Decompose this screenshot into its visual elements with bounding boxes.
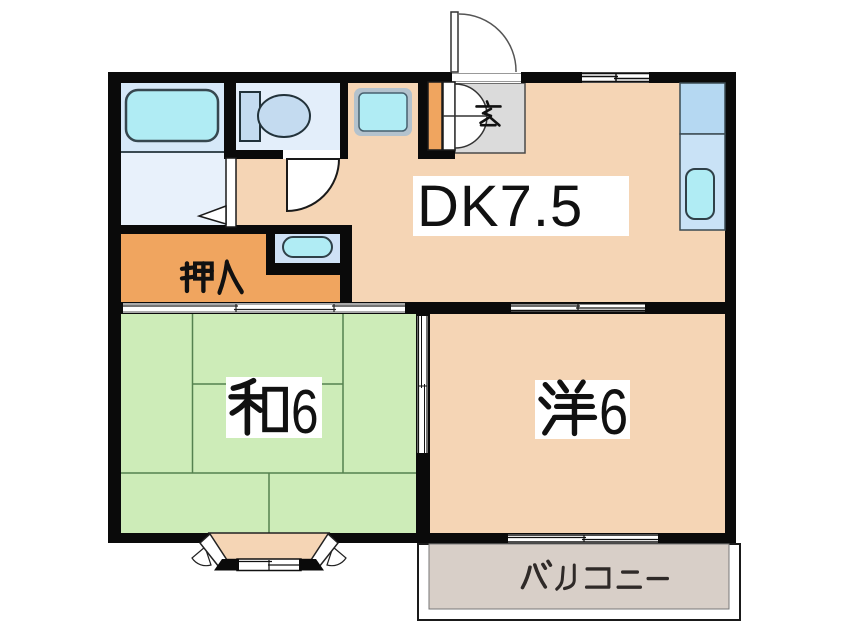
svg-text:DK7.5: DK7.5 xyxy=(417,174,583,239)
svg-text:6: 6 xyxy=(599,377,628,448)
svg-text:6: 6 xyxy=(291,377,319,447)
